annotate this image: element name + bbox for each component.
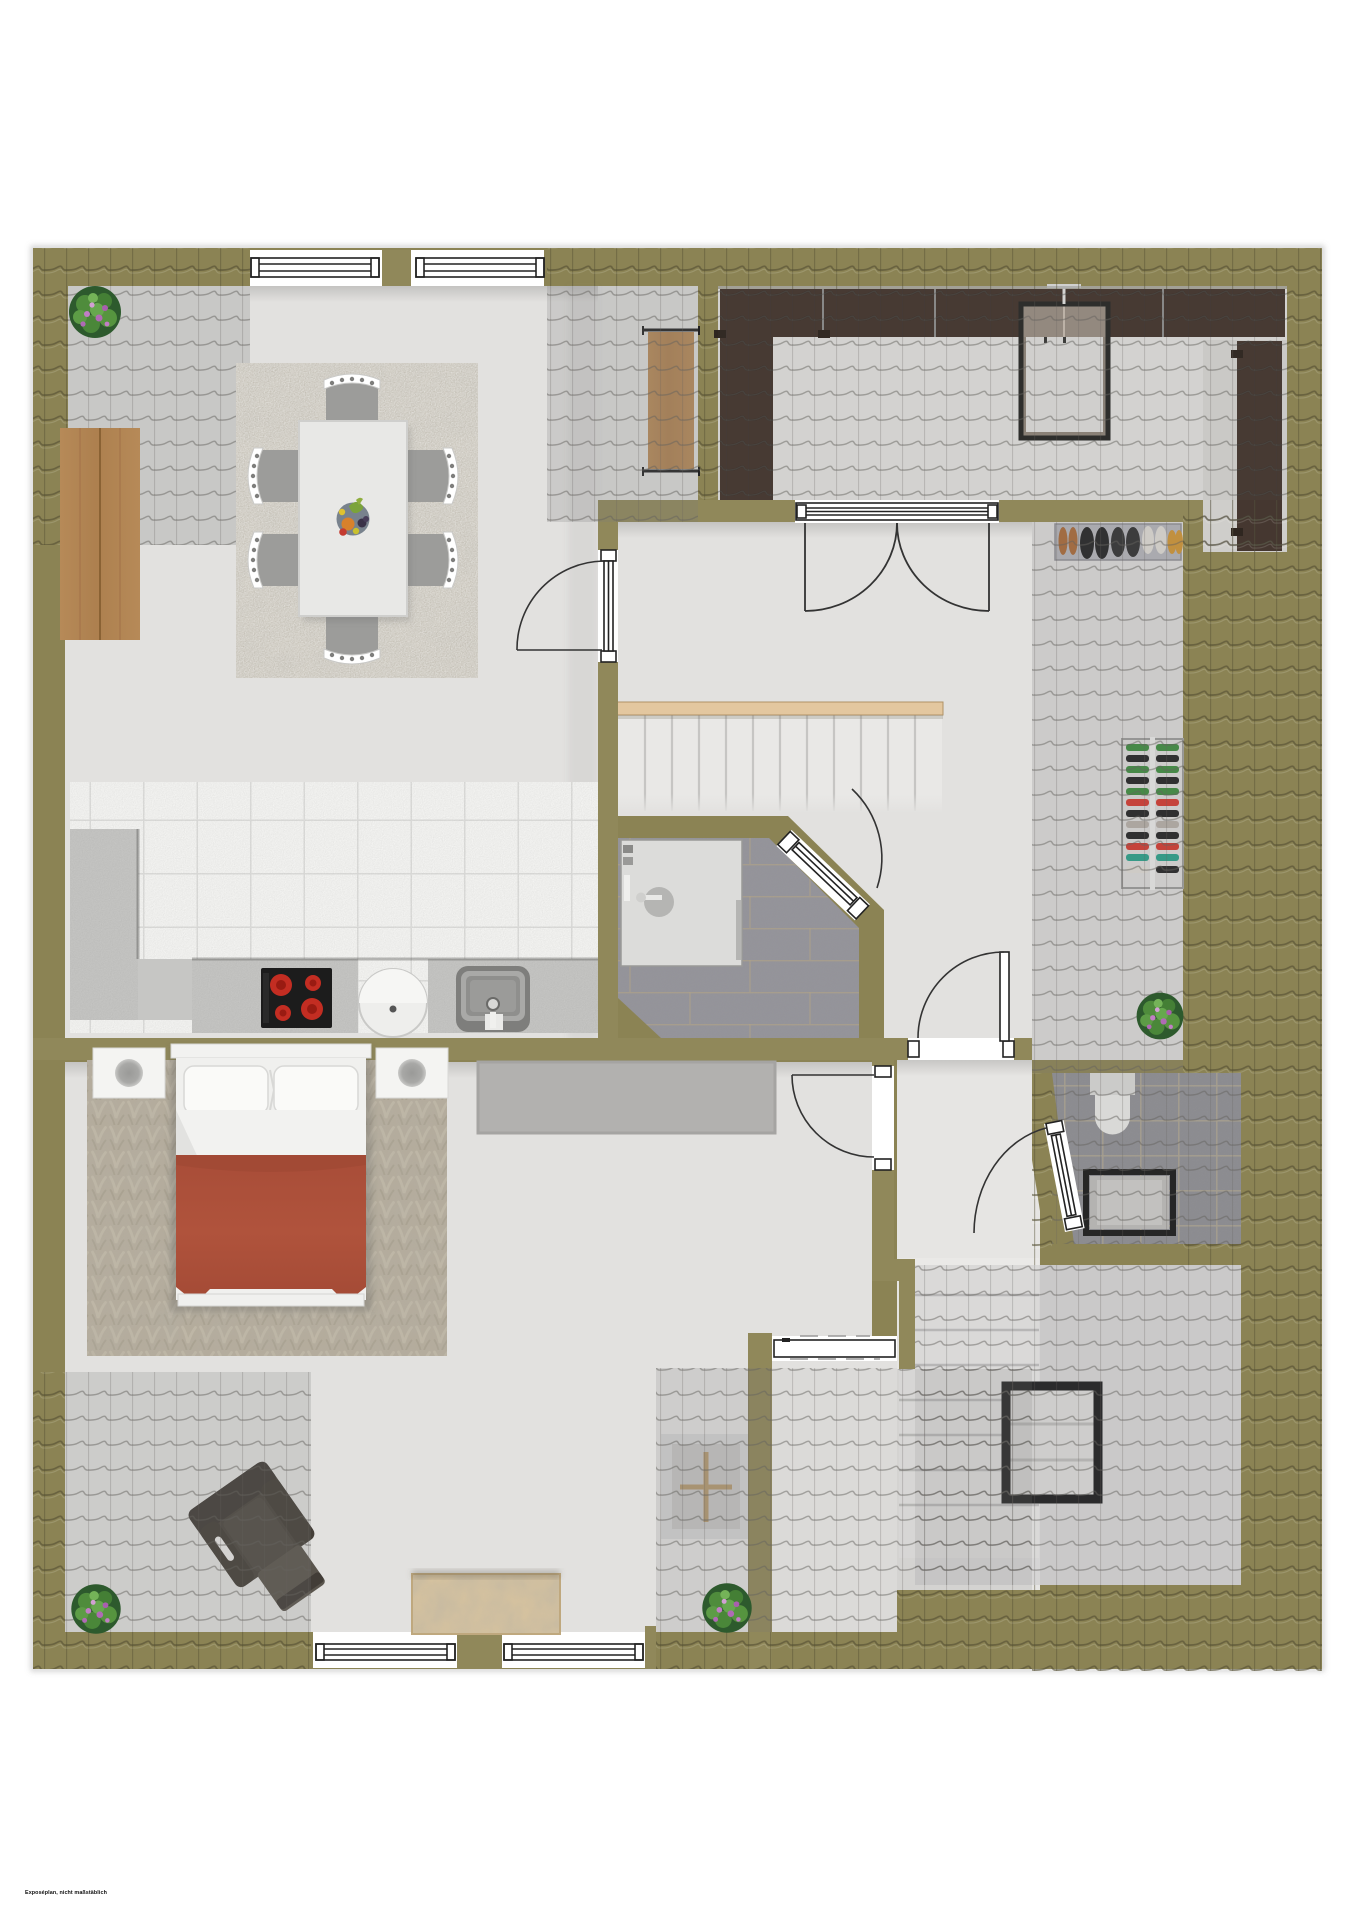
svg-text:Exposéplan, nicht maßstäblich: Exposéplan, nicht maßstäblich [25,1890,107,1896]
